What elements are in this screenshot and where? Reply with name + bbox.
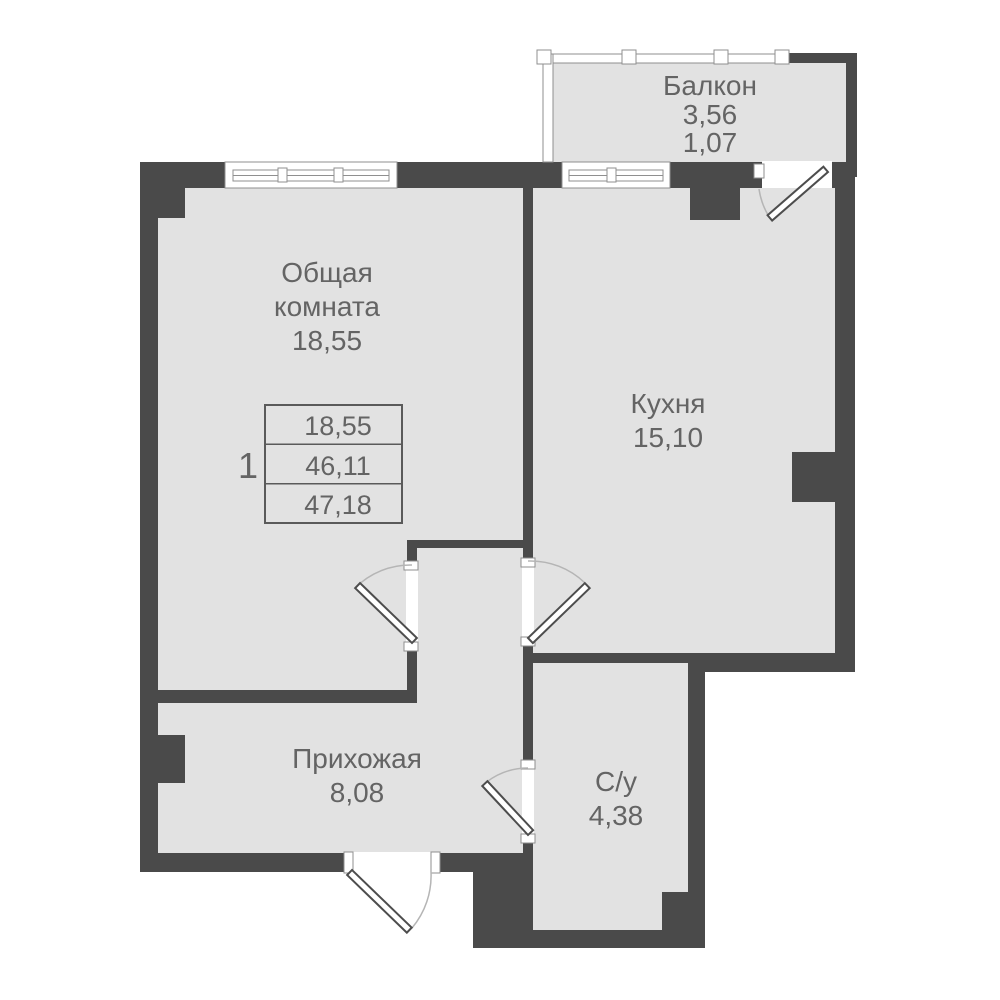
- label-kitchen-name: Кухня: [631, 388, 706, 419]
- apartment-number: 1: [238, 445, 258, 486]
- pillar-kitchen-top: [690, 186, 740, 220]
- room-kitchen: [533, 188, 835, 653]
- window-mullion: [278, 168, 287, 182]
- window-mullion: [607, 168, 616, 182]
- door-swing-arc: [412, 872, 431, 928]
- label-living-name-line2: комната: [274, 291, 380, 322]
- railing-post: [775, 50, 789, 64]
- label-balcony-area-reduced: 1,07: [683, 127, 738, 158]
- label-hallway-area: 8,08: [330, 777, 385, 808]
- label-bathroom-area: 4,38: [589, 800, 644, 831]
- floor-plan-canvas: 1 18,55 46,11 47,18 Балкон 3,56 1,07 Общ…: [0, 0, 1000, 1000]
- door-entrance: [344, 852, 440, 933]
- label-balcony-name: Балкон: [663, 70, 757, 101]
- window-mullion: [334, 168, 343, 182]
- table-row-living-area: 18,55: [304, 411, 372, 441]
- label-living-name-line1: Общая: [281, 257, 373, 288]
- railing-post: [714, 50, 728, 64]
- label-bathroom-name: С/у: [595, 766, 637, 797]
- label-hallway-name: Прихожая: [292, 743, 422, 774]
- label-kitchen-area: 15,10: [633, 422, 703, 453]
- door-leaf: [347, 870, 412, 933]
- pillar-hallway-left: [158, 735, 185, 783]
- door-opening: [522, 565, 534, 638]
- railing-top: [540, 54, 788, 63]
- floor-plan-svg: 1 18,55 46,11 47,18 Балкон 3,56 1,07 Общ…: [0, 0, 1000, 1000]
- pillar-living-top-left: [140, 162, 185, 218]
- railing-post: [622, 50, 636, 64]
- notch-bathroom-corner: [662, 892, 688, 930]
- table-row-total-area: 47,18: [304, 490, 372, 520]
- label-living-area: 18,55: [292, 325, 362, 356]
- kitchen-window: [562, 162, 670, 188]
- railing-left: [543, 54, 553, 162]
- door-opening: [353, 852, 431, 874]
- pillar-kitchen-right: [792, 452, 835, 502]
- table-row-usable-area: 46,11: [305, 451, 371, 481]
- door-jamb: [431, 852, 440, 873]
- living-room-window: [225, 162, 397, 188]
- door-jamb: [521, 558, 535, 567]
- railing-post: [537, 50, 551, 64]
- label-balcony-area: 3,56: [683, 99, 738, 130]
- door-jamb: [754, 164, 764, 178]
